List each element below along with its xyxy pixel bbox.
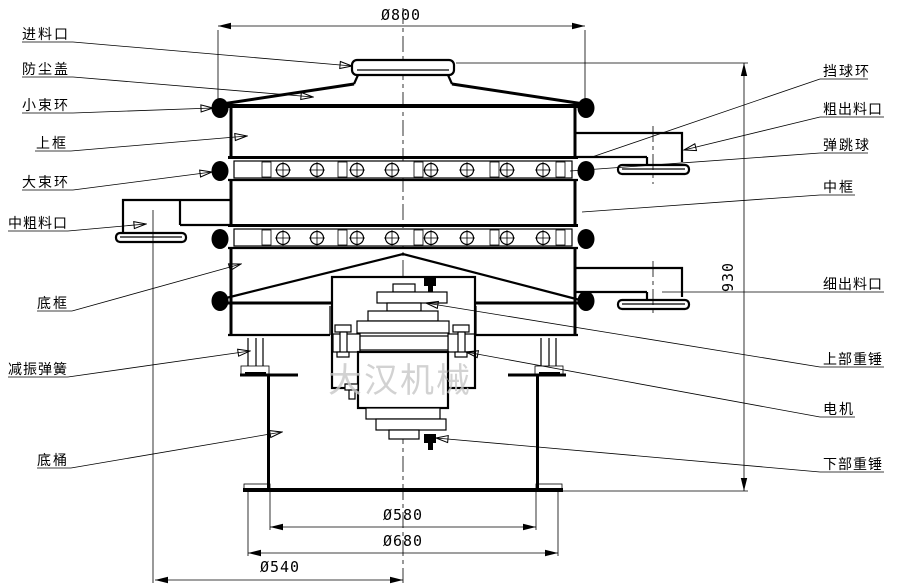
sieve-deck-2 bbox=[228, 226, 578, 249]
dim-barrel-diameter: Ø580 bbox=[383, 506, 423, 524]
label-motor: 电机 bbox=[823, 402, 855, 418]
sieve-deck-1 bbox=[228, 158, 578, 181]
label-feed-inlet: 进料口 bbox=[22, 27, 70, 43]
vibrating-sifter-drawing: 大汉机械 Ø800 930 Ø580 Ø680 Ø540 bbox=[0, 0, 897, 587]
label-lower-weight: 下部重锤 bbox=[823, 457, 883, 473]
diagram-canvas: 大汉机械 Ø800 930 Ø580 Ø680 Ø540 bbox=[0, 0, 897, 587]
label-upper-frame: 上框 bbox=[36, 136, 68, 152]
label-coarse-outlet: 粗出料口 bbox=[823, 102, 883, 118]
label-bouncing-ball: 弹跳球 bbox=[823, 138, 871, 154]
label-bottom-barrel: 底桶 bbox=[37, 453, 69, 469]
label-mid-coarse-outlet: 中粗料口 bbox=[8, 216, 68, 232]
dim-base-flange-diameter: Ø680 bbox=[383, 532, 423, 550]
label-large-clamp-ring: 大束环 bbox=[22, 175, 70, 191]
label-damping-spring: 减振弹簧 bbox=[8, 362, 68, 378]
dim-outlet-center-diameter: Ø540 bbox=[260, 558, 300, 576]
label-middle-frame: 中框 bbox=[823, 180, 855, 196]
watermark-text: 大汉机械 bbox=[328, 362, 472, 400]
label-dust-cover: 防尘盖 bbox=[22, 62, 70, 78]
label-ball-stop-ring: 挡球环 bbox=[823, 64, 871, 80]
label-small-clamp-ring: 小束环 bbox=[22, 98, 70, 114]
dust-cover bbox=[214, 84, 590, 106]
label-upper-weight: 上部重锤 bbox=[823, 352, 883, 368]
machine-drawing: 大汉机械 bbox=[116, 8, 689, 583]
lower-weight bbox=[366, 408, 446, 450]
dim-top-diameter: Ø800 bbox=[381, 6, 421, 24]
label-fine-outlet: 细出料口 bbox=[823, 277, 883, 293]
motor-assembly bbox=[226, 254, 580, 450]
label-bottom-frame: 底框 bbox=[37, 296, 69, 312]
mid-coarse-outlet-spout bbox=[116, 200, 230, 583]
dim-overall-height: 930 bbox=[719, 262, 737, 292]
feed-inlet bbox=[352, 60, 454, 84]
